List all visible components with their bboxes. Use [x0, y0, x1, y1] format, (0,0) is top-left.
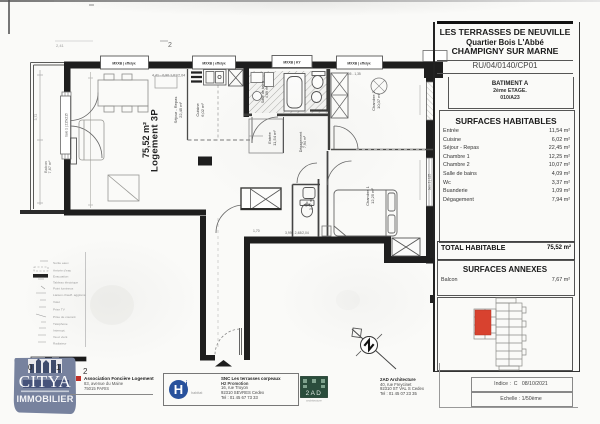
svg-text:MXXB | effelyx: MXXB | effelyx [112, 62, 135, 66]
svg-text:IMMOBILIER: IMMOBILIER [16, 394, 73, 404]
svg-text:3,99 - 2,48/2,04: 3,99 - 2,48/2,04 [285, 231, 309, 235]
svg-text:2: 2 [168, 42, 172, 49]
svg-text:Prise de courant: Prise de courant [53, 315, 76, 319]
svg-text:baie 1 | 215x215: baie 1 | 215x215 [65, 113, 69, 137]
svg-text:architecture: architecture [306, 399, 322, 403]
svg-text:MXXB | effelyx: MXXB | effelyx [202, 62, 225, 66]
svg-text:Radiateur: Radiateur [53, 342, 66, 346]
svg-text:2AD: 2AD [306, 390, 323, 397]
svg-text:Tableau électrique: Tableau électrique [53, 281, 78, 285]
svg-text:habitat: habitat [191, 391, 203, 395]
svg-text:2,41: 2,41 [56, 43, 65, 48]
svg-text:1,70: 1,70 [253, 229, 260, 233]
svg-text:i: i [186, 381, 188, 388]
svg-text:Prise TV: Prise TV [53, 308, 66, 312]
svg-text:Sortie eaux: Sortie eaux [53, 261, 69, 265]
svg-text:MXXB | effelyx: MXXB | effelyx [347, 62, 370, 66]
svg-text:CITYA: CITYA [19, 372, 72, 391]
svg-text:H: H [174, 382, 183, 397]
svg-text:Va et vient: Va et vient [53, 335, 68, 339]
svg-text:Point lumineux: Point lumineux [53, 287, 74, 291]
svg-text:Arrivée d'eau: Arrivée d'eau [53, 269, 71, 273]
svg-text:baie 2 | 125: baie 2 | 125 [428, 173, 432, 190]
svg-text:Volet: Volet [53, 300, 60, 304]
svg-text:MXXB | KY: MXXB | KY [283, 61, 301, 65]
svg-text:Interrupt.: Interrupt. [53, 329, 66, 333]
svg-text:Téléphone: Téléphone [53, 322, 68, 326]
svg-text:Liaison chauff. agglomé: Liaison chauff. agglomé [53, 293, 86, 297]
svg-text:Evacuation: Evacuation [53, 275, 69, 279]
